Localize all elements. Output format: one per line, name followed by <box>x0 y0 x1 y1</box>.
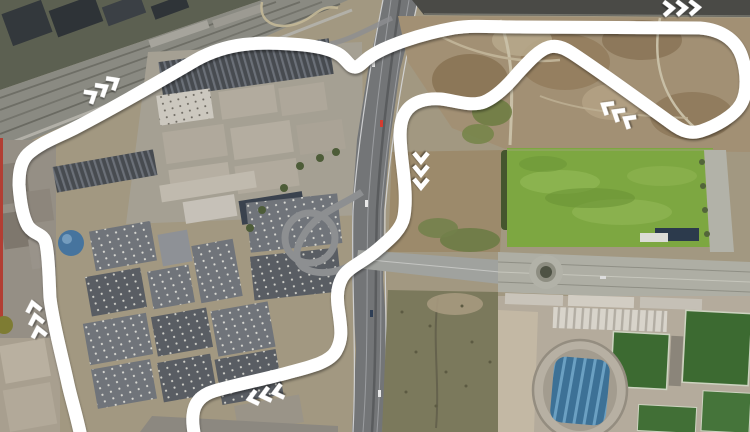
strip-building-2 <box>568 295 634 308</box>
map-canvas <box>0 0 750 432</box>
satellite-map <box>0 0 750 432</box>
scrub-speckle-8 <box>435 405 438 408</box>
field-mottle-5 <box>519 156 567 172</box>
south-hall-4 <box>147 265 195 310</box>
vehicle-2 <box>380 120 383 127</box>
scrub-speckle-6 <box>471 341 474 344</box>
tree-interchange-6 <box>316 154 324 162</box>
pitch-2 <box>682 310 750 385</box>
scrub-speckle-3 <box>461 305 464 308</box>
tree-interchange-5 <box>332 148 340 156</box>
south-hall-2 <box>157 230 192 267</box>
tree-east-2 <box>700 183 706 189</box>
tree-interchange-2 <box>280 184 288 192</box>
scrub-speckle-10 <box>489 361 492 364</box>
scrub-speckle-9 <box>465 385 468 388</box>
blue-dome-highlight <box>62 234 72 244</box>
truck-white <box>640 233 668 242</box>
field-mottle-3 <box>627 166 697 186</box>
tree-east-4 <box>704 231 710 237</box>
bare-ground-west <box>498 310 538 432</box>
beige-hall-b <box>3 382 58 432</box>
tree-interchange-3 <box>258 206 266 214</box>
scrub-speckle-7 <box>405 391 408 394</box>
pitch-4 <box>701 391 750 432</box>
tree-interchange-4 <box>246 224 254 232</box>
roundabout-center <box>540 266 552 278</box>
tree-interchange-1 <box>296 162 304 170</box>
white-warehouse <box>553 307 668 332</box>
field-mottle-4 <box>545 188 635 208</box>
scrub-speckle-4 <box>415 351 418 354</box>
red-edge-strip <box>0 138 3 324</box>
vehicle-6 <box>600 276 606 279</box>
scrub-patch-tan <box>427 293 483 315</box>
scrub-speckle-1 <box>401 311 404 314</box>
slope-green-2 <box>418 218 458 238</box>
basemap-layer <box>0 0 750 432</box>
stadium-roof <box>549 356 611 427</box>
strip-building-3 <box>640 297 702 310</box>
vehicle-4 <box>370 310 373 317</box>
green-patch-west-2 <box>462 124 494 144</box>
beige-hall-a <box>0 338 51 383</box>
strip-building-1 <box>505 293 563 306</box>
blue-dome <box>58 230 84 256</box>
vehicle-3 <box>365 200 368 207</box>
tree-east-1 <box>699 159 705 165</box>
pitch-3 <box>637 405 696 432</box>
scrub-speckle-2 <box>429 325 432 328</box>
scrub-speckle-5 <box>445 371 448 374</box>
vehicle-5 <box>378 390 381 397</box>
tree-east-3 <box>702 207 708 213</box>
